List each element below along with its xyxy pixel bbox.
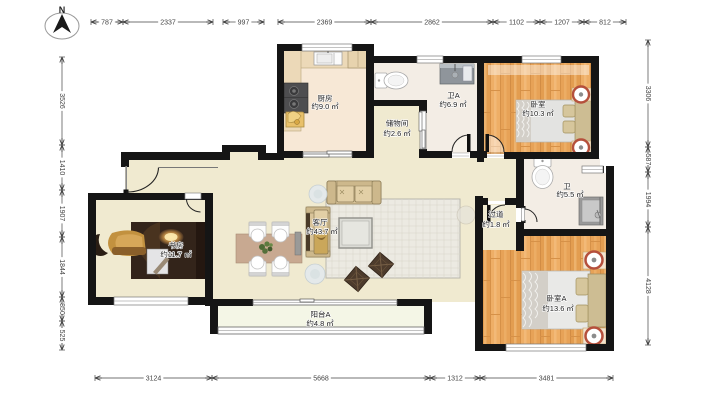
svg-text:4128: 4128: [644, 278, 651, 294]
svg-text:3306: 3306: [644, 86, 651, 102]
svg-text:1907: 1907: [58, 206, 65, 222]
svg-text:787: 787: [101, 19, 113, 26]
svg-text:43.7: 43.7: [314, 227, 329, 236]
svg-text:13.6: 13.6: [550, 304, 565, 313]
svg-text:587: 587: [644, 154, 651, 166]
svg-text:5668: 5668: [313, 375, 329, 382]
svg-text:10.3: 10.3: [530, 109, 545, 118]
svg-text:1994: 1994: [644, 192, 651, 208]
svg-text:3124: 3124: [146, 375, 162, 382]
svg-text:2369: 2369: [317, 19, 333, 26]
svg-text:1410: 1410: [58, 160, 65, 176]
svg-text:6.9: 6.9: [447, 100, 457, 109]
svg-text:A: A: [455, 91, 460, 100]
svg-text:5.5: 5.5: [564, 190, 574, 199]
svg-text:525: 525: [58, 330, 65, 342]
svg-text:2862: 2862: [424, 19, 440, 26]
svg-text:3526: 3526: [58, 93, 65, 109]
svg-text:N: N: [59, 5, 66, 15]
svg-text:2337: 2337: [160, 19, 176, 26]
svg-text:4.8: 4.8: [314, 319, 324, 328]
svg-text:3481: 3481: [539, 375, 555, 382]
svg-text:1102: 1102: [509, 19, 524, 26]
svg-text:1207: 1207: [554, 19, 570, 26]
svg-text:2.6: 2.6: [391, 129, 401, 138]
svg-text:1844: 1844: [58, 259, 65, 275]
svg-text:1312: 1312: [447, 375, 463, 382]
svg-text:A: A: [326, 310, 331, 319]
svg-text:850: 850: [58, 303, 65, 315]
svg-text:812: 812: [599, 19, 611, 26]
svg-text:1.8: 1.8: [490, 220, 500, 229]
svg-text:997: 997: [238, 19, 250, 26]
svg-text:11.7: 11.7: [168, 250, 182, 259]
svg-text:A: A: [562, 294, 567, 303]
svg-text:9.0: 9.0: [319, 102, 329, 111]
